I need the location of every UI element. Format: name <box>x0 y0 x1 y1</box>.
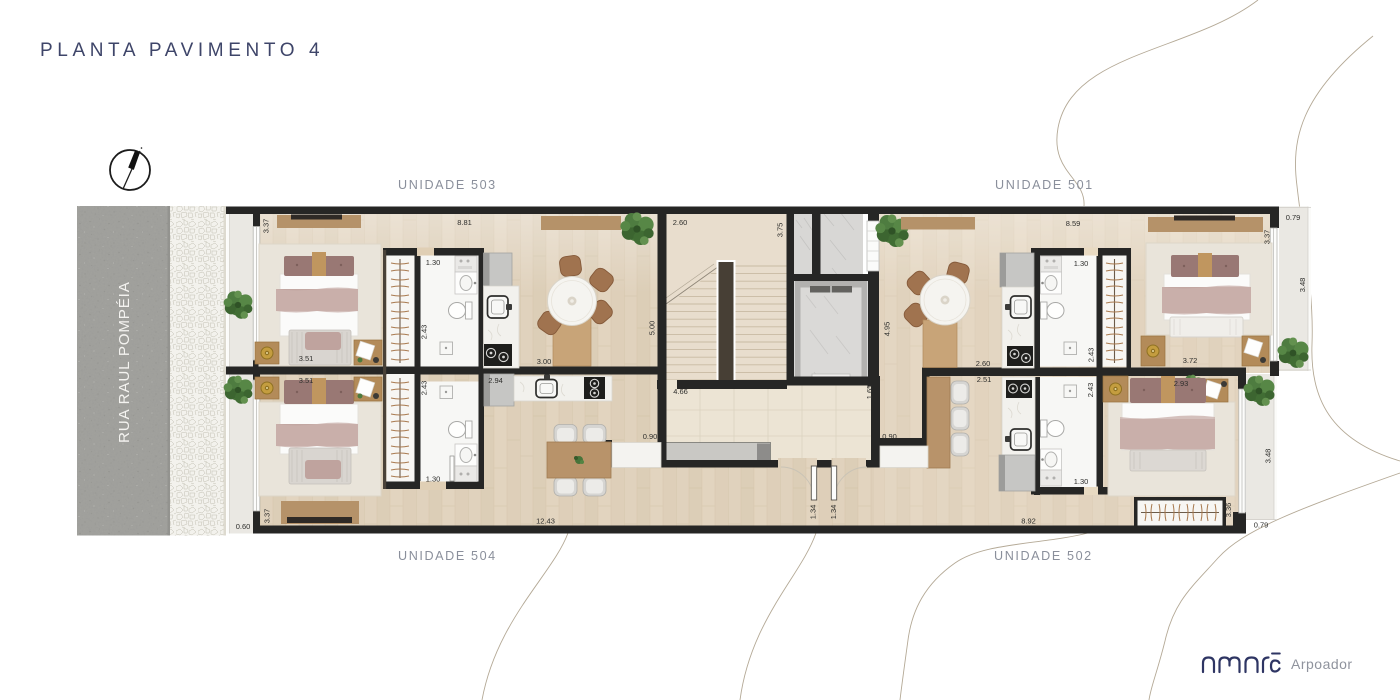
svg-text:RUA RAUL POMPÉIA: RUA RAUL POMPÉIA <box>116 281 133 443</box>
svg-text:1.30: 1.30 <box>1074 477 1089 486</box>
svg-text:2.43: 2.43 <box>1086 383 1095 398</box>
svg-text:0.79: 0.79 <box>1286 213 1301 222</box>
svg-text:3.72: 3.72 <box>1183 356 1198 365</box>
svg-text:1.34: 1.34 <box>829 505 838 520</box>
svg-text:1.30: 1.30 <box>1074 259 1089 268</box>
svg-text:3.48: 3.48 <box>1264 449 1273 464</box>
svg-text:1.30: 1.30 <box>426 475 441 484</box>
svg-text:UNIDADE 501: UNIDADE 501 <box>995 178 1094 192</box>
svg-text:3.51: 3.51 <box>299 376 314 385</box>
svg-text:12.43: 12.43 <box>536 517 555 526</box>
svg-text:2.43: 2.43 <box>420 381 429 396</box>
svg-text:5.00: 5.00 <box>648 321 657 336</box>
svg-text:2.94: 2.94 <box>488 376 503 385</box>
svg-text:1.65: 1.65 <box>865 385 874 400</box>
svg-text:4.66: 4.66 <box>673 387 688 396</box>
svg-text:2.93: 2.93 <box>1174 379 1189 388</box>
svg-text:0.79: 0.79 <box>1254 521 1269 530</box>
svg-text:3.00: 3.00 <box>537 357 552 366</box>
svg-text:PLANTA PAVIMENTO 4: PLANTA PAVIMENTO 4 <box>40 40 324 61</box>
svg-text:0.60: 0.60 <box>236 522 251 531</box>
svg-text:8.59: 8.59 <box>1066 219 1081 228</box>
svg-text:3.37: 3.37 <box>262 219 271 234</box>
svg-text:2.51: 2.51 <box>977 375 992 384</box>
svg-text:3.51: 3.51 <box>299 354 314 363</box>
svg-text:3.37: 3.37 <box>1263 230 1272 245</box>
svg-text:1.34: 1.34 <box>809 505 818 520</box>
svg-text:3.36: 3.36 <box>1224 503 1233 518</box>
svg-text:0.90: 0.90 <box>643 432 658 441</box>
svg-text:Arpoador: Arpoador <box>1291 656 1353 672</box>
svg-text:2.60: 2.60 <box>673 218 688 227</box>
svg-text:UNIDADE 503: UNIDADE 503 <box>398 178 497 192</box>
svg-text:2.60: 2.60 <box>976 359 991 368</box>
svg-text:2.43: 2.43 <box>420 325 429 340</box>
svg-text:8.81: 8.81 <box>457 218 472 227</box>
svg-text:4.95: 4.95 <box>883 322 892 337</box>
svg-text:8.92: 8.92 <box>1021 517 1036 526</box>
svg-text:UNIDADE 502: UNIDADE 502 <box>994 549 1093 563</box>
svg-text:UNIDADE 504: UNIDADE 504 <box>398 549 497 563</box>
svg-text:1.30: 1.30 <box>426 258 441 267</box>
svg-text:3.37: 3.37 <box>263 509 272 524</box>
svg-text:0.90: 0.90 <box>882 432 897 441</box>
svg-text:3.48: 3.48 <box>1298 278 1307 293</box>
svg-text:2.43: 2.43 <box>1087 348 1096 363</box>
svg-text:3.75: 3.75 <box>776 223 785 238</box>
